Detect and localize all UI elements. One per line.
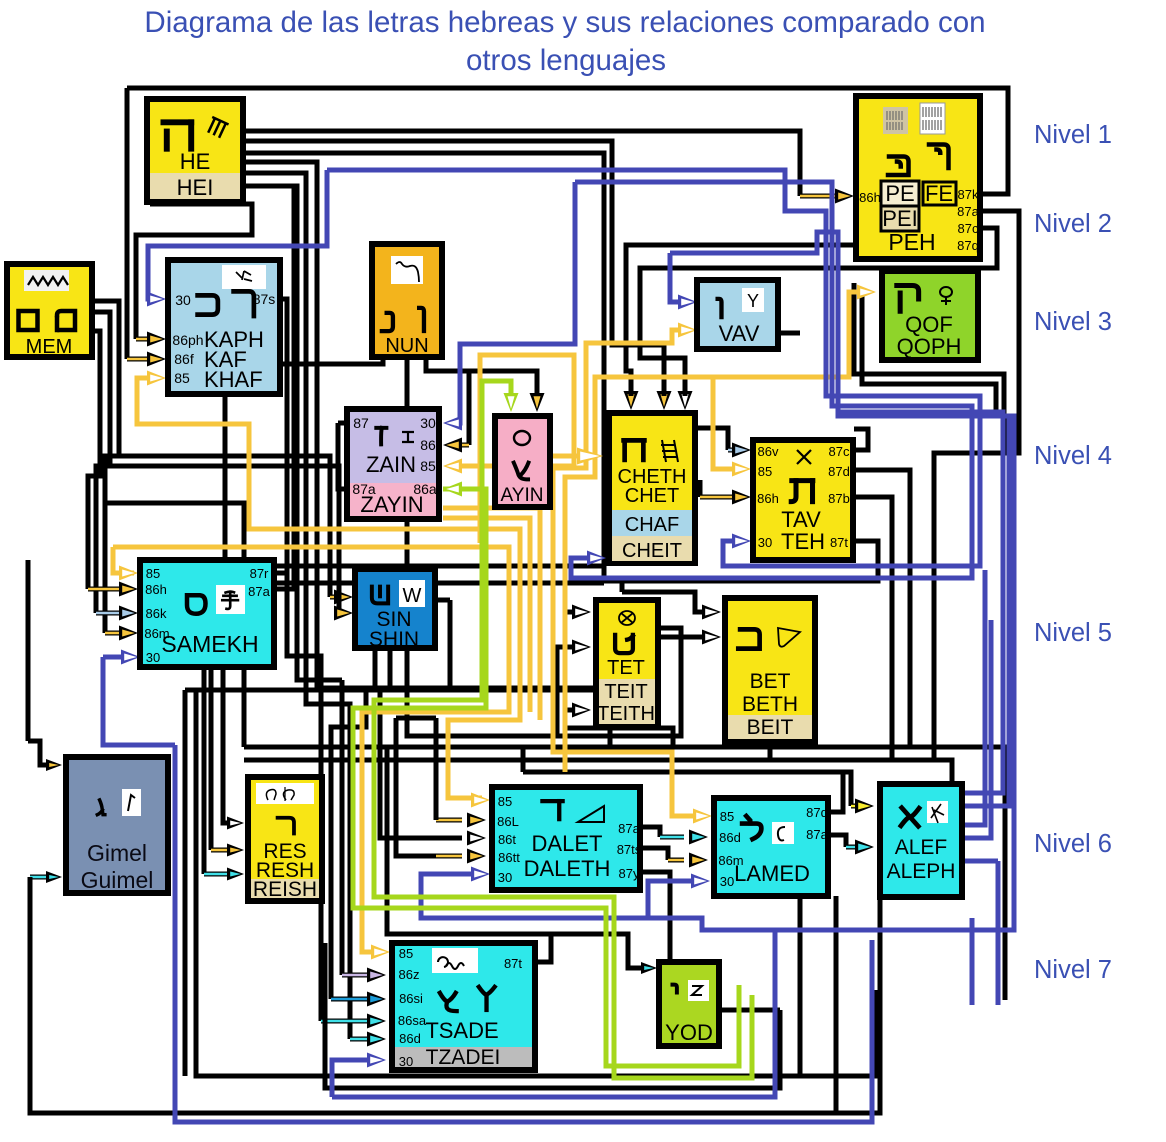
svg-text:85: 85 — [420, 458, 436, 474]
svg-text:HE: HE — [180, 149, 211, 174]
svg-text:MEM: MEM — [26, 336, 73, 358]
svg-text:TET: TET — [607, 657, 645, 679]
svg-text:86h: 86h — [757, 491, 779, 506]
svg-text:Diagrama de las letras hebreas: Diagrama de las letras hebreas y sus rel… — [144, 6, 985, 39]
svg-text:TSADE: TSADE — [425, 1018, 498, 1043]
svg-text:87c: 87c — [829, 444, 850, 459]
svg-text:Nivel 5: Nivel 5 — [1034, 619, 1112, 647]
svg-text:DALET: DALET — [532, 831, 603, 856]
svg-text:Nivel 4: Nivel 4 — [1034, 442, 1112, 470]
svg-text:Nivel 7: Nivel 7 — [1034, 956, 1112, 984]
svg-text:85: 85 — [758, 464, 772, 479]
svg-text:PEI: PEI — [882, 206, 917, 231]
svg-text:87ts: 87ts — [617, 842, 642, 857]
svg-text:ZAIN: ZAIN — [366, 452, 416, 477]
svg-text:NUN: NUN — [385, 335, 428, 357]
svg-text:86: 86 — [420, 437, 436, 453]
svg-text:86d: 86d — [399, 1031, 421, 1046]
svg-text:87a: 87a — [248, 584, 270, 599]
svg-text:87q: 87q — [957, 238, 979, 253]
svg-text:87y: 87y — [619, 866, 640, 881]
svg-text:86h: 86h — [145, 582, 167, 597]
svg-text:86tt: 86tt — [498, 850, 520, 865]
svg-text:REISH: REISH — [253, 878, 317, 901]
svg-text:30: 30 — [399, 1054, 413, 1069]
svg-text:87r: 87r — [250, 566, 269, 581]
svg-text:BEIT: BEIT — [747, 716, 794, 739]
svg-text:Nivel 3: Nivel 3 — [1034, 308, 1112, 336]
svg-text:BET: BET — [750, 670, 791, 693]
svg-text:85: 85 — [146, 566, 160, 581]
svg-text:87t: 87t — [830, 535, 848, 550]
svg-text:ALEF: ALEF — [895, 836, 948, 859]
svg-text:LAMED: LAMED — [734, 861, 810, 886]
svg-text:SHIN: SHIN — [369, 628, 419, 651]
svg-text:Nivel 6: Nivel 6 — [1034, 830, 1112, 858]
svg-text:30: 30 — [146, 650, 160, 665]
svg-text:YOD: YOD — [665, 1020, 713, 1045]
svg-text:87d: 87d — [806, 805, 828, 820]
svg-text:Guimel: Guimel — [81, 867, 154, 893]
svg-text:W: W — [403, 585, 422, 607]
svg-text:87k: 87k — [958, 187, 979, 202]
svg-text:86z: 86z — [399, 967, 420, 982]
svg-text:TEH: TEH — [781, 529, 825, 554]
svg-text:CHAF: CHAF — [625, 514, 679, 536]
svg-text:87b: 87b — [828, 491, 850, 506]
svg-text:86d: 86d — [719, 830, 741, 845]
svg-text:87c: 87c — [958, 221, 979, 236]
svg-text:ALEPH: ALEPH — [887, 860, 956, 883]
svg-text:86t: 86t — [498, 832, 516, 847]
svg-text:Y: Y — [747, 291, 759, 311]
svg-text:85: 85 — [498, 794, 512, 809]
svg-text:30: 30 — [720, 874, 734, 889]
svg-text:HEI: HEI — [177, 175, 214, 200]
svg-text:CHEIT: CHEIT — [622, 540, 682, 562]
svg-text:TEITH: TEITH — [597, 703, 655, 725]
svg-text:86ph: 86ph — [172, 332, 203, 348]
svg-text:86L: 86L — [497, 814, 519, 829]
svg-text:PEH: PEH — [888, 229, 935, 255]
svg-text:TEIT: TEIT — [604, 681, 647, 703]
svg-text:30: 30 — [498, 870, 512, 885]
svg-text:87a: 87a — [957, 204, 979, 219]
svg-text:TZADEI: TZADEI — [426, 1046, 501, 1069]
svg-text:86sa: 86sa — [398, 1013, 427, 1028]
svg-text:Nivel 1: Nivel 1 — [1034, 121, 1112, 149]
svg-text:86f: 86f — [174, 351, 194, 367]
svg-text:FE: FE — [925, 181, 953, 206]
svg-text:85: 85 — [399, 946, 413, 961]
svg-text:QOPH: QOPH — [897, 334, 962, 359]
svg-text:ZAYIN: ZAYIN — [360, 492, 423, 517]
svg-text:SAMEKH: SAMEKH — [161, 631, 258, 657]
svg-text:Nivel 2: Nivel 2 — [1034, 210, 1112, 238]
svg-text:otros lenguajes: otros lenguajes — [466, 44, 666, 77]
svg-text:85: 85 — [174, 370, 190, 386]
svg-text:86si: 86si — [399, 991, 423, 1006]
svg-text:AYIN: AYIN — [501, 485, 544, 506]
svg-text:87: 87 — [353, 415, 369, 431]
svg-text:VAV: VAV — [719, 321, 760, 346]
svg-text:CHET: CHET — [625, 485, 679, 507]
svg-text:DALETH: DALETH — [524, 856, 611, 881]
svg-text:30: 30 — [420, 415, 436, 431]
svg-text:PE: PE — [885, 181, 914, 206]
svg-text:86k: 86k — [146, 606, 167, 621]
svg-text:87a: 87a — [806, 827, 828, 842]
svg-text:87d: 87d — [828, 464, 850, 479]
svg-text:86h: 86h — [859, 190, 881, 205]
svg-text:87a: 87a — [618, 821, 640, 836]
svg-text:Gimel: Gimel — [87, 840, 147, 866]
svg-text:30: 30 — [175, 292, 191, 308]
svg-text:30: 30 — [758, 535, 772, 550]
svg-text:87t: 87t — [504, 956, 522, 971]
svg-text:KHAF: KHAF — [204, 367, 263, 392]
svg-text:86v: 86v — [758, 444, 779, 459]
svg-text:BETH: BETH — [742, 693, 798, 716]
svg-text:85: 85 — [720, 809, 734, 824]
